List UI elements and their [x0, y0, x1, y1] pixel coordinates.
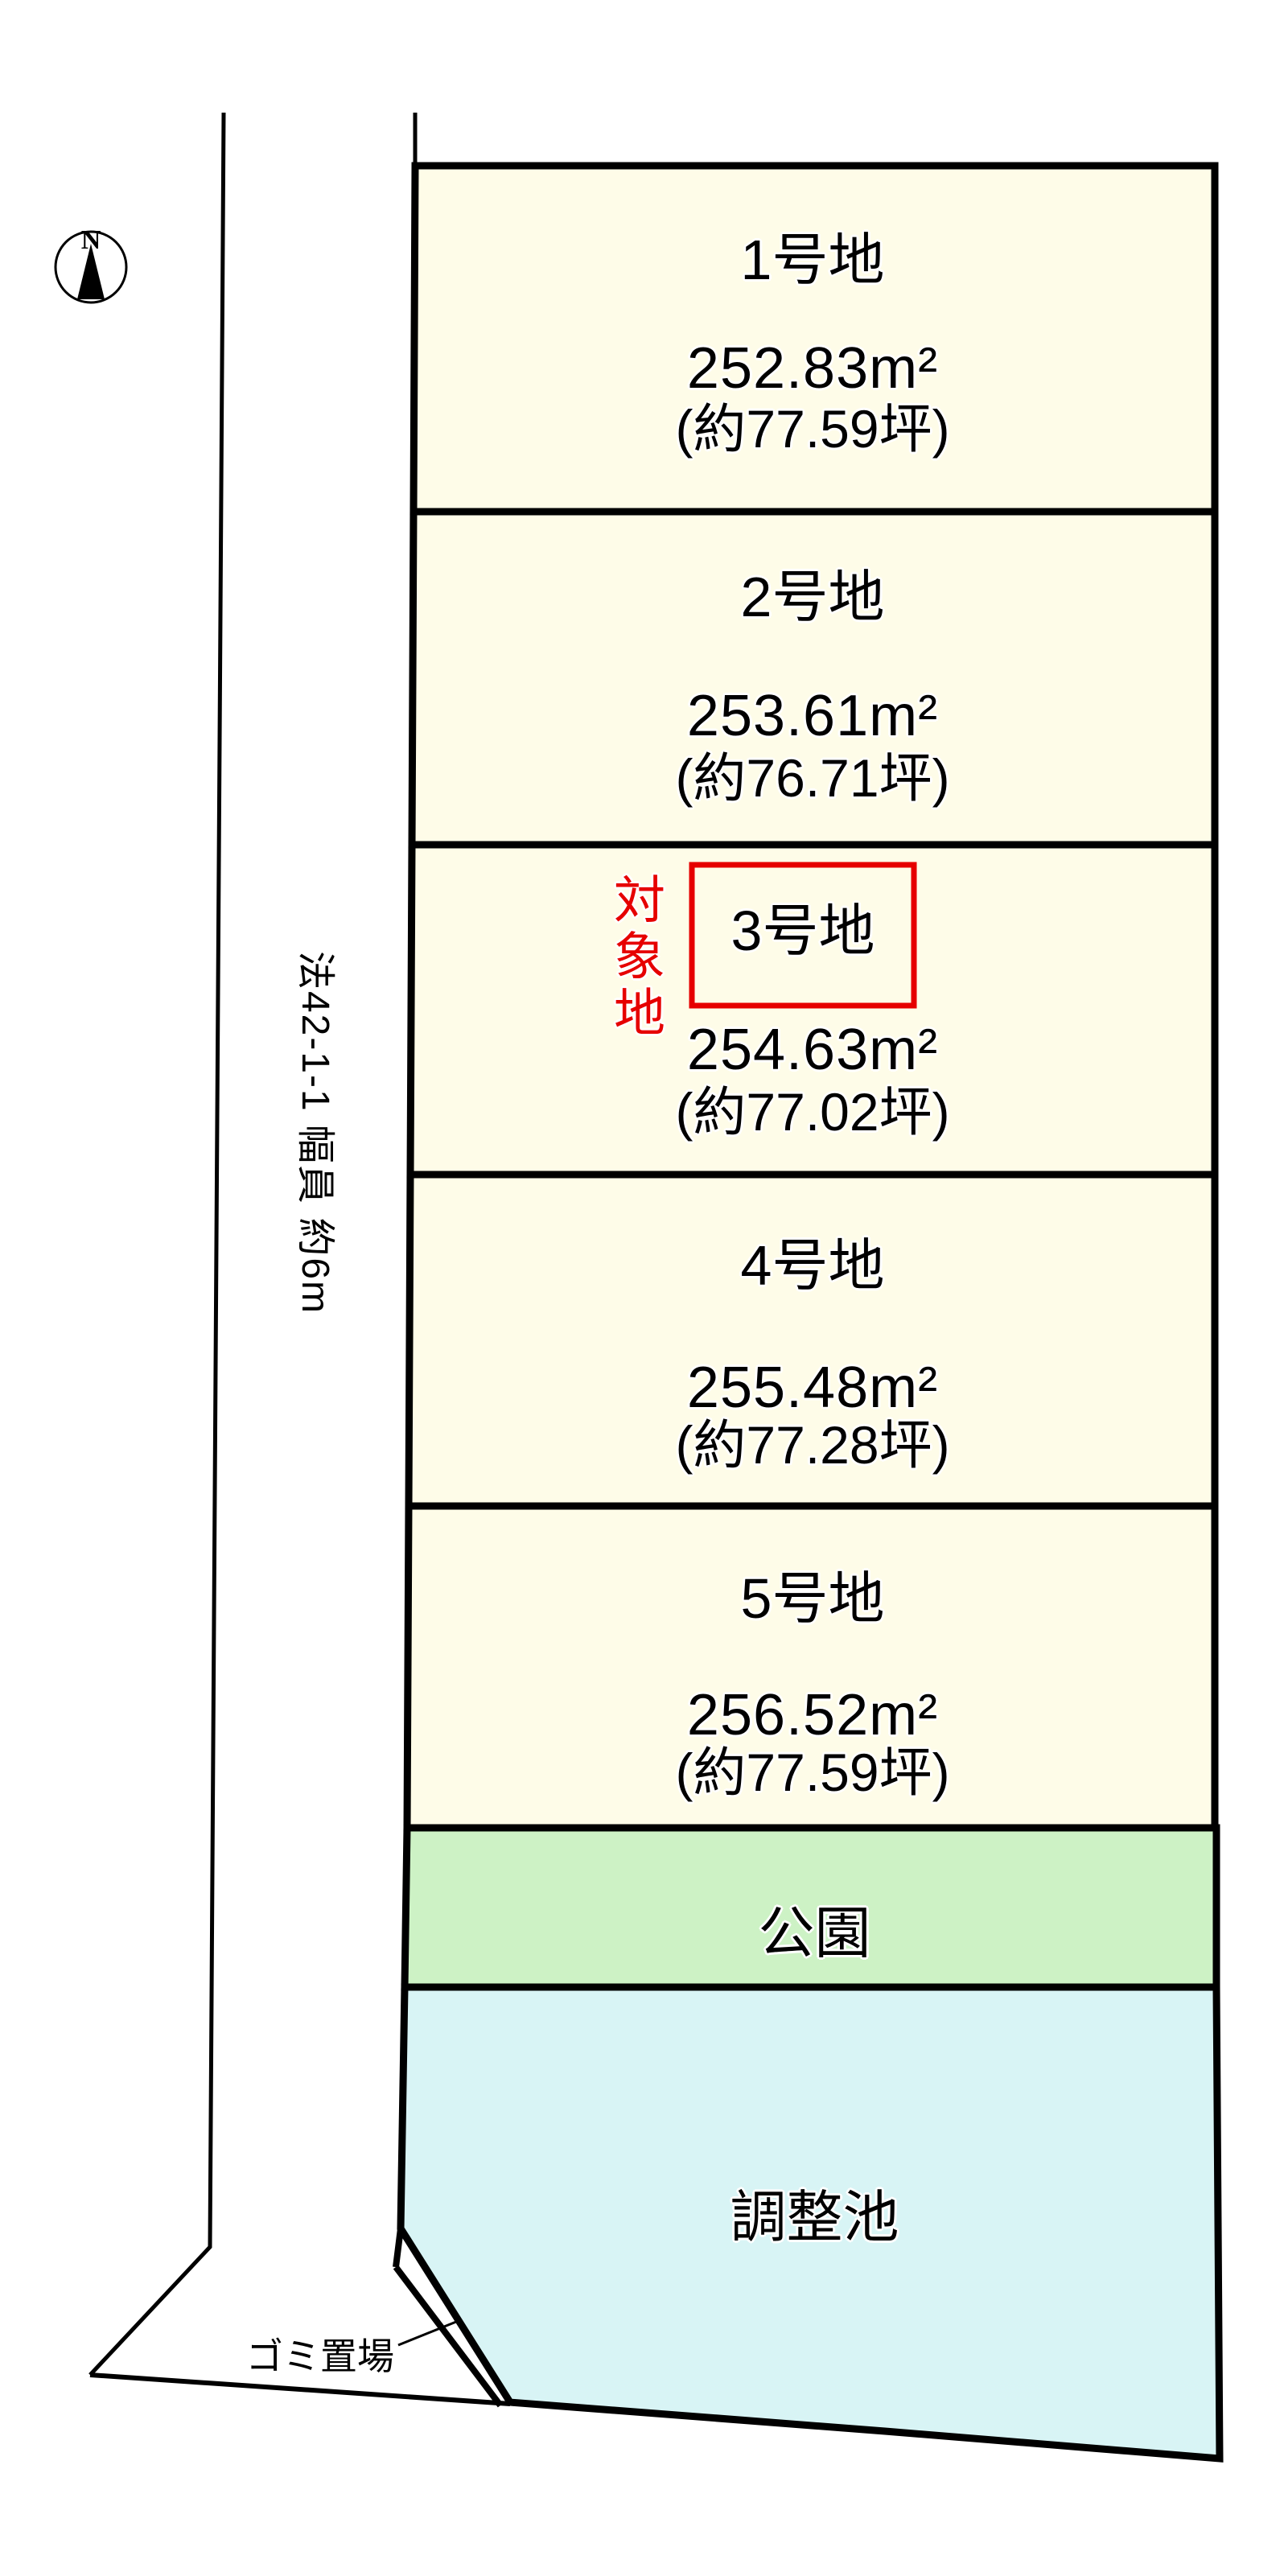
lot-3-title: 3号地 — [692, 903, 914, 959]
compass-north-label: N — [75, 226, 107, 255]
lot-5-tsubo: (約77.59坪) — [410, 1746, 1215, 1799]
park-label: 公園 — [410, 1905, 1219, 1961]
road-bottom-edge — [90, 2375, 510, 2404]
lot-2-title: 2号地 — [410, 569, 1215, 625]
lot-1-title: 1号地 — [410, 232, 1215, 288]
lot-5-size: 256.52m² — [410, 1686, 1215, 1744]
road-label: 法42-1-1 幅員 約6m — [295, 940, 334, 1326]
garbage-area-label: ゴミ置場 — [200, 2338, 441, 2375]
lot-1-size: 252.83m² — [410, 339, 1215, 397]
lot-3-size: 254.63m² — [410, 1021, 1215, 1079]
target-site-label: 対象地 — [603, 873, 668, 1042]
lot-4-tsubo: (約77.28坪) — [410, 1418, 1215, 1471]
land-subdivision-plan: N 法42-1-1 幅員 約6m 1号地 252.83m² (約77.59坪) … — [0, 0, 1284, 2576]
lot-5-title: 5号地 — [410, 1570, 1215, 1627]
lot-4-size: 255.48m² — [410, 1359, 1215, 1417]
road-left-edge — [90, 113, 224, 2375]
lot-1-tsubo: (約77.59坪) — [410, 402, 1215, 455]
lot-2-tsubo: (約76.71坪) — [410, 751, 1215, 804]
lot-3-tsubo: (約77.02坪) — [410, 1085, 1215, 1138]
pond-label: 調整池 — [410, 2189, 1219, 2245]
lot-4-title: 4号地 — [410, 1237, 1215, 1294]
lot-2-size: 253.61m² — [410, 687, 1215, 745]
garbage-strip-left-edge — [396, 2228, 401, 2267]
